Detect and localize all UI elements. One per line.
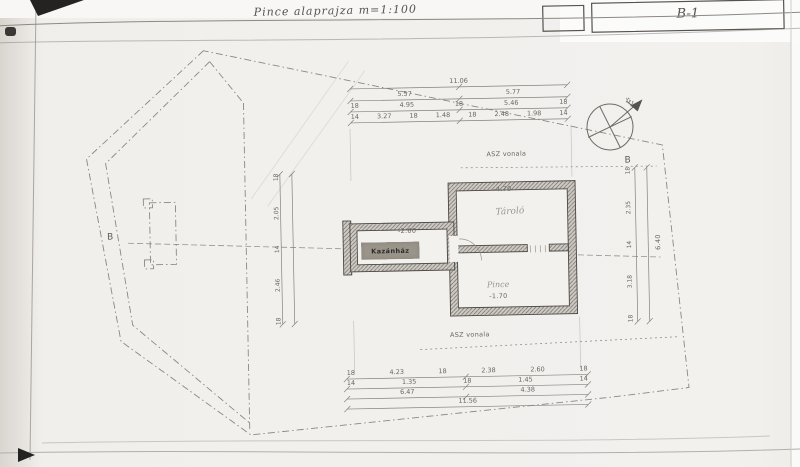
room-label-cellar: Pince [487,280,509,289]
dim-right-chain: 18 2.35 14 3.18 18 [621,167,640,321]
dim-value: 11.56 [458,398,477,405]
dim-value: 1.35 [402,379,417,386]
dim-value: 6.47 [400,389,415,396]
dim-value: 2.35 [626,201,632,214]
dim-value: 18 [463,378,471,385]
dim-value: 18 [455,101,463,108]
dim-value: 18 [274,173,280,181]
north-compass [586,99,643,150]
dim-value: 18 [559,99,567,106]
dim-value: 2.38 [481,367,496,374]
dim-value: 18 [438,368,446,375]
level-mark-wing: -2.60 [398,227,416,235]
dim-value: 14 [627,241,633,249]
dim-value: 5.57 [397,91,412,98]
dim-value: 4.95 [400,102,415,109]
dim-value: 18 [629,315,635,323]
dim-value: 11.06 [449,78,468,85]
room-label-storage: Tároló [495,206,524,218]
dim-value: 18 [468,112,476,119]
asz-note-upper: ASZ vonala [486,150,526,159]
dim-value: 1.48 [436,112,451,119]
dim-value: 14 [347,380,355,387]
level-mark-bottom: -1.70 [489,292,507,300]
room-label-boiler: Kazánház [361,242,419,260]
dim-value: 2.46 [276,279,282,292]
dim-left-chain: 18 2.05 14 2.46 18 [269,174,288,324]
section-mark-right: B [625,156,631,166]
section-mark-left: B [107,233,113,243]
dim-value: 3.27 [377,113,392,120]
dim-value: 2.60 [530,366,545,373]
dim-value: 4.38 [520,386,535,393]
dim-value: 14 [579,375,587,382]
dim-value: 18 [409,113,417,120]
dim-value: 5.77 [506,89,521,96]
dim-value: 2.05 [274,207,280,220]
dim-value: 18 [350,103,358,110]
dim-value: 1.98 [527,110,542,117]
dim-value: 5.46 [504,100,519,107]
drawing-sheet: Pince alaprajza m=1:100 B-1 É B B ASZ vo… [0,0,800,467]
dim-value: 14 [351,114,359,121]
dim-value: 4.23 [389,369,404,376]
dim-value: 18 [277,317,283,325]
dim-value: 14 [559,110,567,117]
dim-value: 2.48 [494,111,509,118]
scanned-floorplan-page: Pince alaprajza m=1:100 B-1 É B B ASZ vo… [0,0,800,467]
dim-value: 14 [275,245,281,253]
dim-value: 3.18 [628,275,634,288]
dim-value: 1.45 [518,376,533,383]
dim-value: 18 [347,370,355,377]
asz-note-lower: ASZ vonala [450,330,490,339]
dim-value: 18 [579,365,587,372]
dim-value: 18 [626,167,632,175]
dim-right-total: 6.40 [654,234,662,250]
level-mark-top: -4.70 [493,185,511,193]
